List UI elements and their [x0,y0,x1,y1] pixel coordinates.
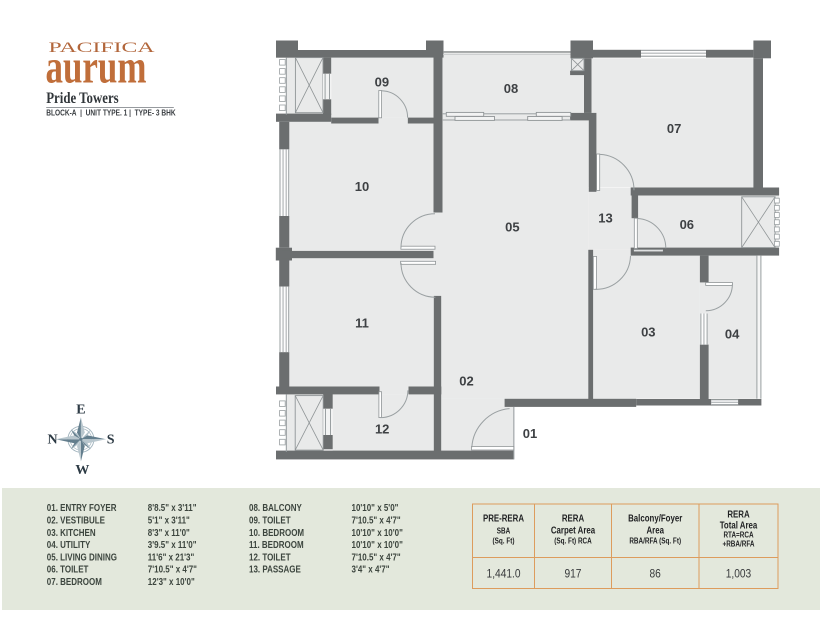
svg-text:5'1" x 3'11": 5'1" x 3'11" [148,515,190,526]
svg-text:7'10.5" x 4'7": 7'10.5" x 4'7" [352,515,401,526]
svg-text:N: N [48,433,58,448]
svg-text:04: 04 [725,327,740,342]
svg-text:13: 13 [598,211,612,226]
svg-text:10. BEDROOM: 10. BEDROOM [249,527,304,538]
svg-text:3'4" x 4'7": 3'4" x 4'7" [352,564,390,575]
svg-text:09: 09 [375,75,389,90]
svg-text:10: 10 [355,179,369,194]
svg-text:01: 01 [523,426,537,441]
svg-text:10'10" x 10'0": 10'10" x 10'0" [352,527,403,538]
svg-text:08. BALCONY: 08. BALCONY [249,502,302,513]
svg-text:3'9.5" x 11'0": 3'9.5" x 11'0" [148,539,197,550]
svg-text:11'6" x 21'3": 11'6" x 21'3" [148,552,195,563]
svg-text:05. LIVING DINING: 05. LIVING DINING [47,552,117,563]
svg-text:11. BEDROOM: 11. BEDROOM [249,539,304,550]
svg-text:12. TOILET: 12. TOILET [249,552,291,563]
svg-text:03: 03 [641,325,655,340]
svg-text:07. BEDROOM: 07. BEDROOM [47,576,102,587]
svg-text:13. PASSAGE: 13. PASSAGE [249,564,301,575]
svg-text:12'3" x 10'0": 12'3" x 10'0" [148,576,195,587]
svg-text:Pride Towers: Pride Towers [46,90,119,107]
svg-text:917: 917 [564,568,581,581]
svg-text:1,003: 1,003 [726,568,752,581]
svg-text:Area: Area [646,524,664,535]
svg-text:aurum: aurum [46,40,147,93]
svg-text:7'10.5" x 4'7": 7'10.5" x 4'7" [148,564,197,575]
svg-text:1,441.0: 1,441.0 [487,568,521,581]
svg-text:BLOCK-A | UNIT TYPE. 1 | TY: BLOCK-A | UNIT TYPE. 1 | TYPE- 3 BHK [46,109,175,118]
svg-text:SBA: SBA [497,526,511,536]
svg-text:12: 12 [375,422,389,437]
svg-text:Carpet Area: Carpet Area [551,524,596,535]
svg-text:10'10" x 5'0": 10'10" x 5'0" [352,502,399,513]
svg-text:Balcony/Foyer: Balcony/Foyer [628,512,683,523]
svg-text:W: W [75,463,89,478]
svg-text:S: S [107,433,115,448]
svg-text:(Sq. Ft): (Sq. Ft) [493,536,515,546]
svg-text:86: 86 [650,568,661,581]
svg-text:10'10" x 10'0": 10'10" x 10'0" [352,539,403,550]
svg-text:09. TOILET: 09. TOILET [249,515,291,526]
svg-text:8'8.5" x 3'11": 8'8.5" x 3'11" [148,502,197,513]
svg-text:RERA: RERA [727,508,750,519]
svg-text:RERA: RERA [562,512,585,523]
svg-text:E: E [76,402,85,417]
svg-text:01. ENTRY FOYER: 01. ENTRY FOYER [47,502,117,513]
svg-text:06: 06 [680,217,694,232]
svg-text:+RBA/RFA: +RBA/RFA [722,539,754,549]
svg-text:03. KITCHEN: 03. KITCHEN [47,527,96,538]
svg-text:(Sq. Ft) RCA: (Sq. Ft) RCA [554,536,592,546]
svg-text:02: 02 [459,374,473,389]
svg-text:RBA/RFA (Sq. Ft): RBA/RFA (Sq. Ft) [629,536,681,546]
svg-text:02. VESTIBULE: 02. VESTIBULE [47,515,105,526]
svg-text:06. TOILET: 06. TOILET [47,564,89,575]
svg-text:08: 08 [504,81,518,96]
svg-text:8'3" x 11'0": 8'3" x 11'0" [148,527,190,538]
svg-text:05: 05 [505,220,519,235]
svg-text:7'10.5" x 4'7": 7'10.5" x 4'7" [352,552,401,563]
svg-text:11: 11 [355,316,369,331]
svg-text:07: 07 [667,121,681,136]
svg-text:04. UTILITY: 04. UTILITY [47,539,91,550]
svg-text:PRE-RERA: PRE-RERA [483,512,524,523]
